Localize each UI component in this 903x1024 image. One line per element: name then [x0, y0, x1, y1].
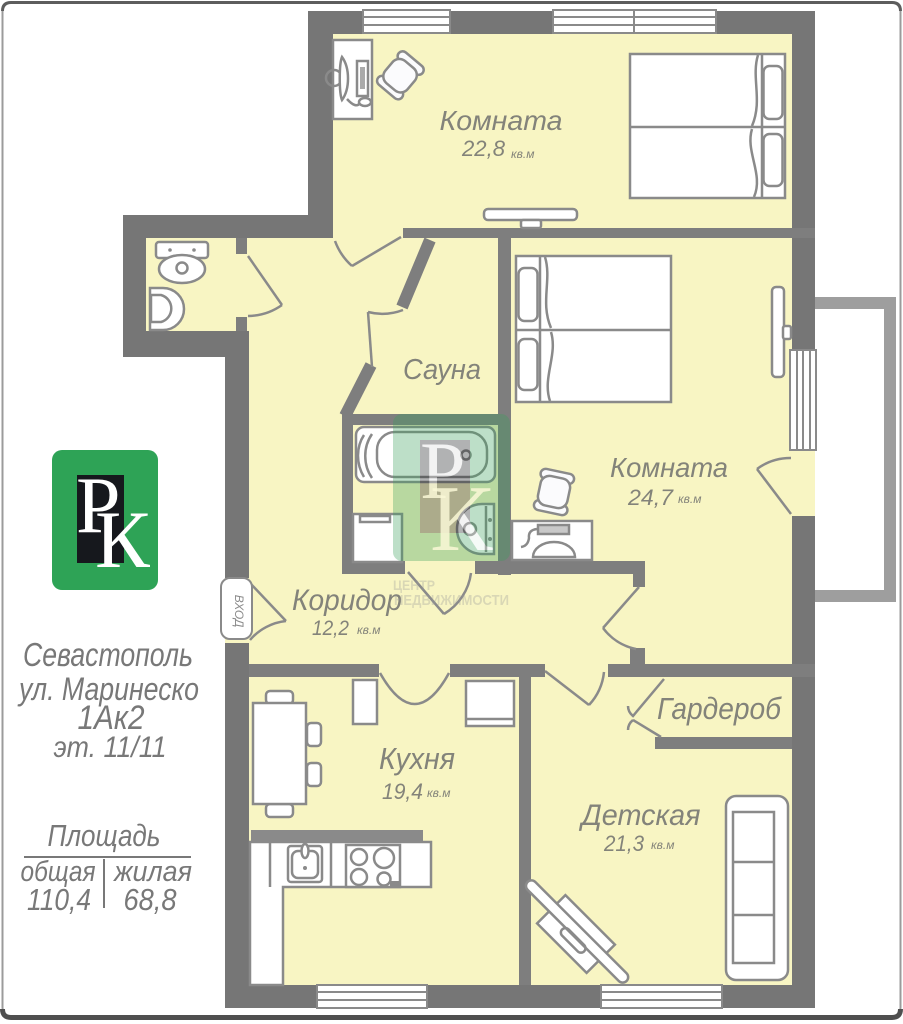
svg-text:Гардероб: Гардероб: [657, 691, 782, 726]
svg-text:кв.м: кв.м: [357, 623, 381, 637]
svg-text:Детская: Детская: [579, 799, 701, 832]
svg-text:24,7: 24,7: [627, 485, 674, 510]
svg-text:ВХОД: ВХОД: [232, 595, 246, 628]
svg-text:68,8: 68,8: [124, 882, 178, 917]
svg-text:12,2: 12,2: [312, 617, 349, 640]
svg-text:НЕДВИЖИМОСТИ: НЕДВИЖИМОСТИ: [394, 592, 509, 609]
svg-text:К: К: [95, 494, 150, 585]
svg-text:Комната: Комната: [440, 105, 563, 136]
svg-text:Сауна: Сауна: [403, 354, 481, 386]
svg-text:Коридор: Коридор: [292, 584, 402, 617]
svg-text:Комната: Комната: [610, 452, 728, 483]
svg-text:кв.м: кв.м: [427, 786, 451, 800]
svg-text:Площадь: Площадь: [48, 818, 161, 853]
svg-text:К: К: [430, 467, 494, 571]
svg-text:кв.м: кв.м: [678, 492, 702, 506]
svg-text:Севастополь: Севастополь: [23, 636, 193, 673]
svg-text:19,4: 19,4: [382, 779, 423, 804]
svg-text:ЦЕНТР: ЦЕНТР: [393, 577, 435, 593]
svg-text:110,4: 110,4: [27, 882, 91, 917]
svg-text:кв.м: кв.м: [511, 147, 535, 161]
svg-text:21,3: 21,3: [603, 831, 645, 856]
svg-text:Кухня: Кухня: [379, 741, 455, 776]
svg-text:22,8: 22,8: [461, 136, 506, 161]
svg-text:кв.м: кв.м: [651, 838, 675, 852]
svg-text:эт. 11/11: эт. 11/11: [54, 731, 167, 764]
